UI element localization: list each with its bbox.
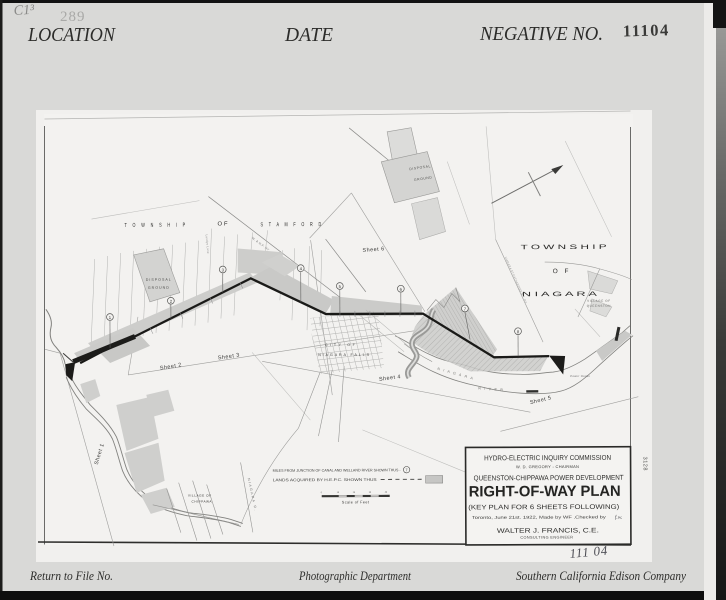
svg-text:CONSULTING ENGINEER: CONSULTING ENGINEER bbox=[520, 535, 573, 539]
svg-text:7: 7 bbox=[406, 468, 408, 472]
svg-text:3128: 3128 bbox=[642, 457, 648, 471]
svg-text:O F: O F bbox=[553, 268, 571, 275]
svg-text:W. D. GREGORY - CHAIRMAN: W. D. GREGORY - CHAIRMAN bbox=[516, 464, 579, 469]
svg-text:HYDRO-ELECTRIC INQUIRY COMMISS: HYDRO-ELECTRIC INQUIRY COMMISSION bbox=[484, 455, 611, 463]
svg-text:Power House: Power House bbox=[570, 374, 590, 378]
svg-text:GROUND: GROUND bbox=[148, 286, 170, 290]
svg-text:N I A G A R A: N I A G A R A bbox=[522, 291, 598, 298]
svg-text:LOCATION: LOCATION bbox=[27, 24, 116, 46]
svg-text:NIAGARA FALLS: NIAGARA FALLS bbox=[318, 353, 371, 357]
svg-text:MILES FROM JUNCTION OF CANAL A: MILES FROM JUNCTION OF CANAL AND WELLAND… bbox=[273, 468, 402, 473]
svg-text:Toronto, June 21st. 1922, Made: Toronto, June 21st. 1922, Made by WF .Ch… bbox=[472, 514, 607, 520]
svg-text:VILLAGE OF: VILLAGE OF bbox=[188, 494, 212, 498]
svg-text:RIGHT-OF-WAY PLAN: RIGHT-OF-WAY PLAN bbox=[469, 483, 621, 501]
svg-text:T O W N S H I P: T O W N S H I P bbox=[125, 223, 188, 229]
svg-text:Scale of Feet: Scale of Feet bbox=[342, 500, 370, 504]
svg-text:T O W N S H I P: T O W N S H I P bbox=[521, 244, 607, 251]
svg-text:NEGATIVE NO.: NEGATIVE NO. bbox=[479, 23, 603, 45]
svg-text:WALTER J. FRANCIS, C.E.: WALTER J. FRANCIS, C.E. bbox=[497, 527, 599, 534]
svg-text:DISPOSAL: DISPOSAL bbox=[146, 278, 172, 282]
svg-text:S T A M F O R D: S T A M F O R D bbox=[261, 222, 324, 228]
svg-text:DATE: DATE bbox=[284, 24, 333, 46]
svg-text:(KEY PLAN FOR 6 SHEETS FOLLOWI: (KEY PLAN FOR 6 SHEETS FOLLOWING) bbox=[468, 504, 619, 512]
svg-text:LANDS ACQUIRED BY H.E.P.C. SHO: LANDS ACQUIRED BY H.E.P.C. SHOWN THUS bbox=[273, 478, 378, 482]
svg-text:QUEENSTON: QUEENSTON bbox=[587, 304, 611, 308]
svg-text:C1³: C1³ bbox=[13, 3, 35, 19]
svg-text:f.w.: f.w. bbox=[615, 514, 623, 521]
svg-text:CHIPPAWA: CHIPPAWA bbox=[191, 500, 212, 504]
svg-text:Return to File No.: Return to File No. bbox=[29, 569, 113, 583]
svg-text:289: 289 bbox=[60, 9, 86, 25]
svg-text:Southern California Edison Com: Southern California Edison Company bbox=[516, 569, 686, 583]
svg-text:QUEENSTON-CHIPPAWA POWER DEVEL: QUEENSTON-CHIPPAWA POWER DEVELOPMENT bbox=[474, 475, 625, 483]
svg-text:CITY OF: CITY OF bbox=[325, 343, 357, 347]
svg-text:VILLAGE OF: VILLAGE OF bbox=[587, 299, 611, 303]
svg-text:OF: OF bbox=[218, 221, 230, 227]
svg-text:11104: 11104 bbox=[623, 20, 670, 40]
svg-text:Photographic Department: Photographic Department bbox=[298, 569, 411, 583]
